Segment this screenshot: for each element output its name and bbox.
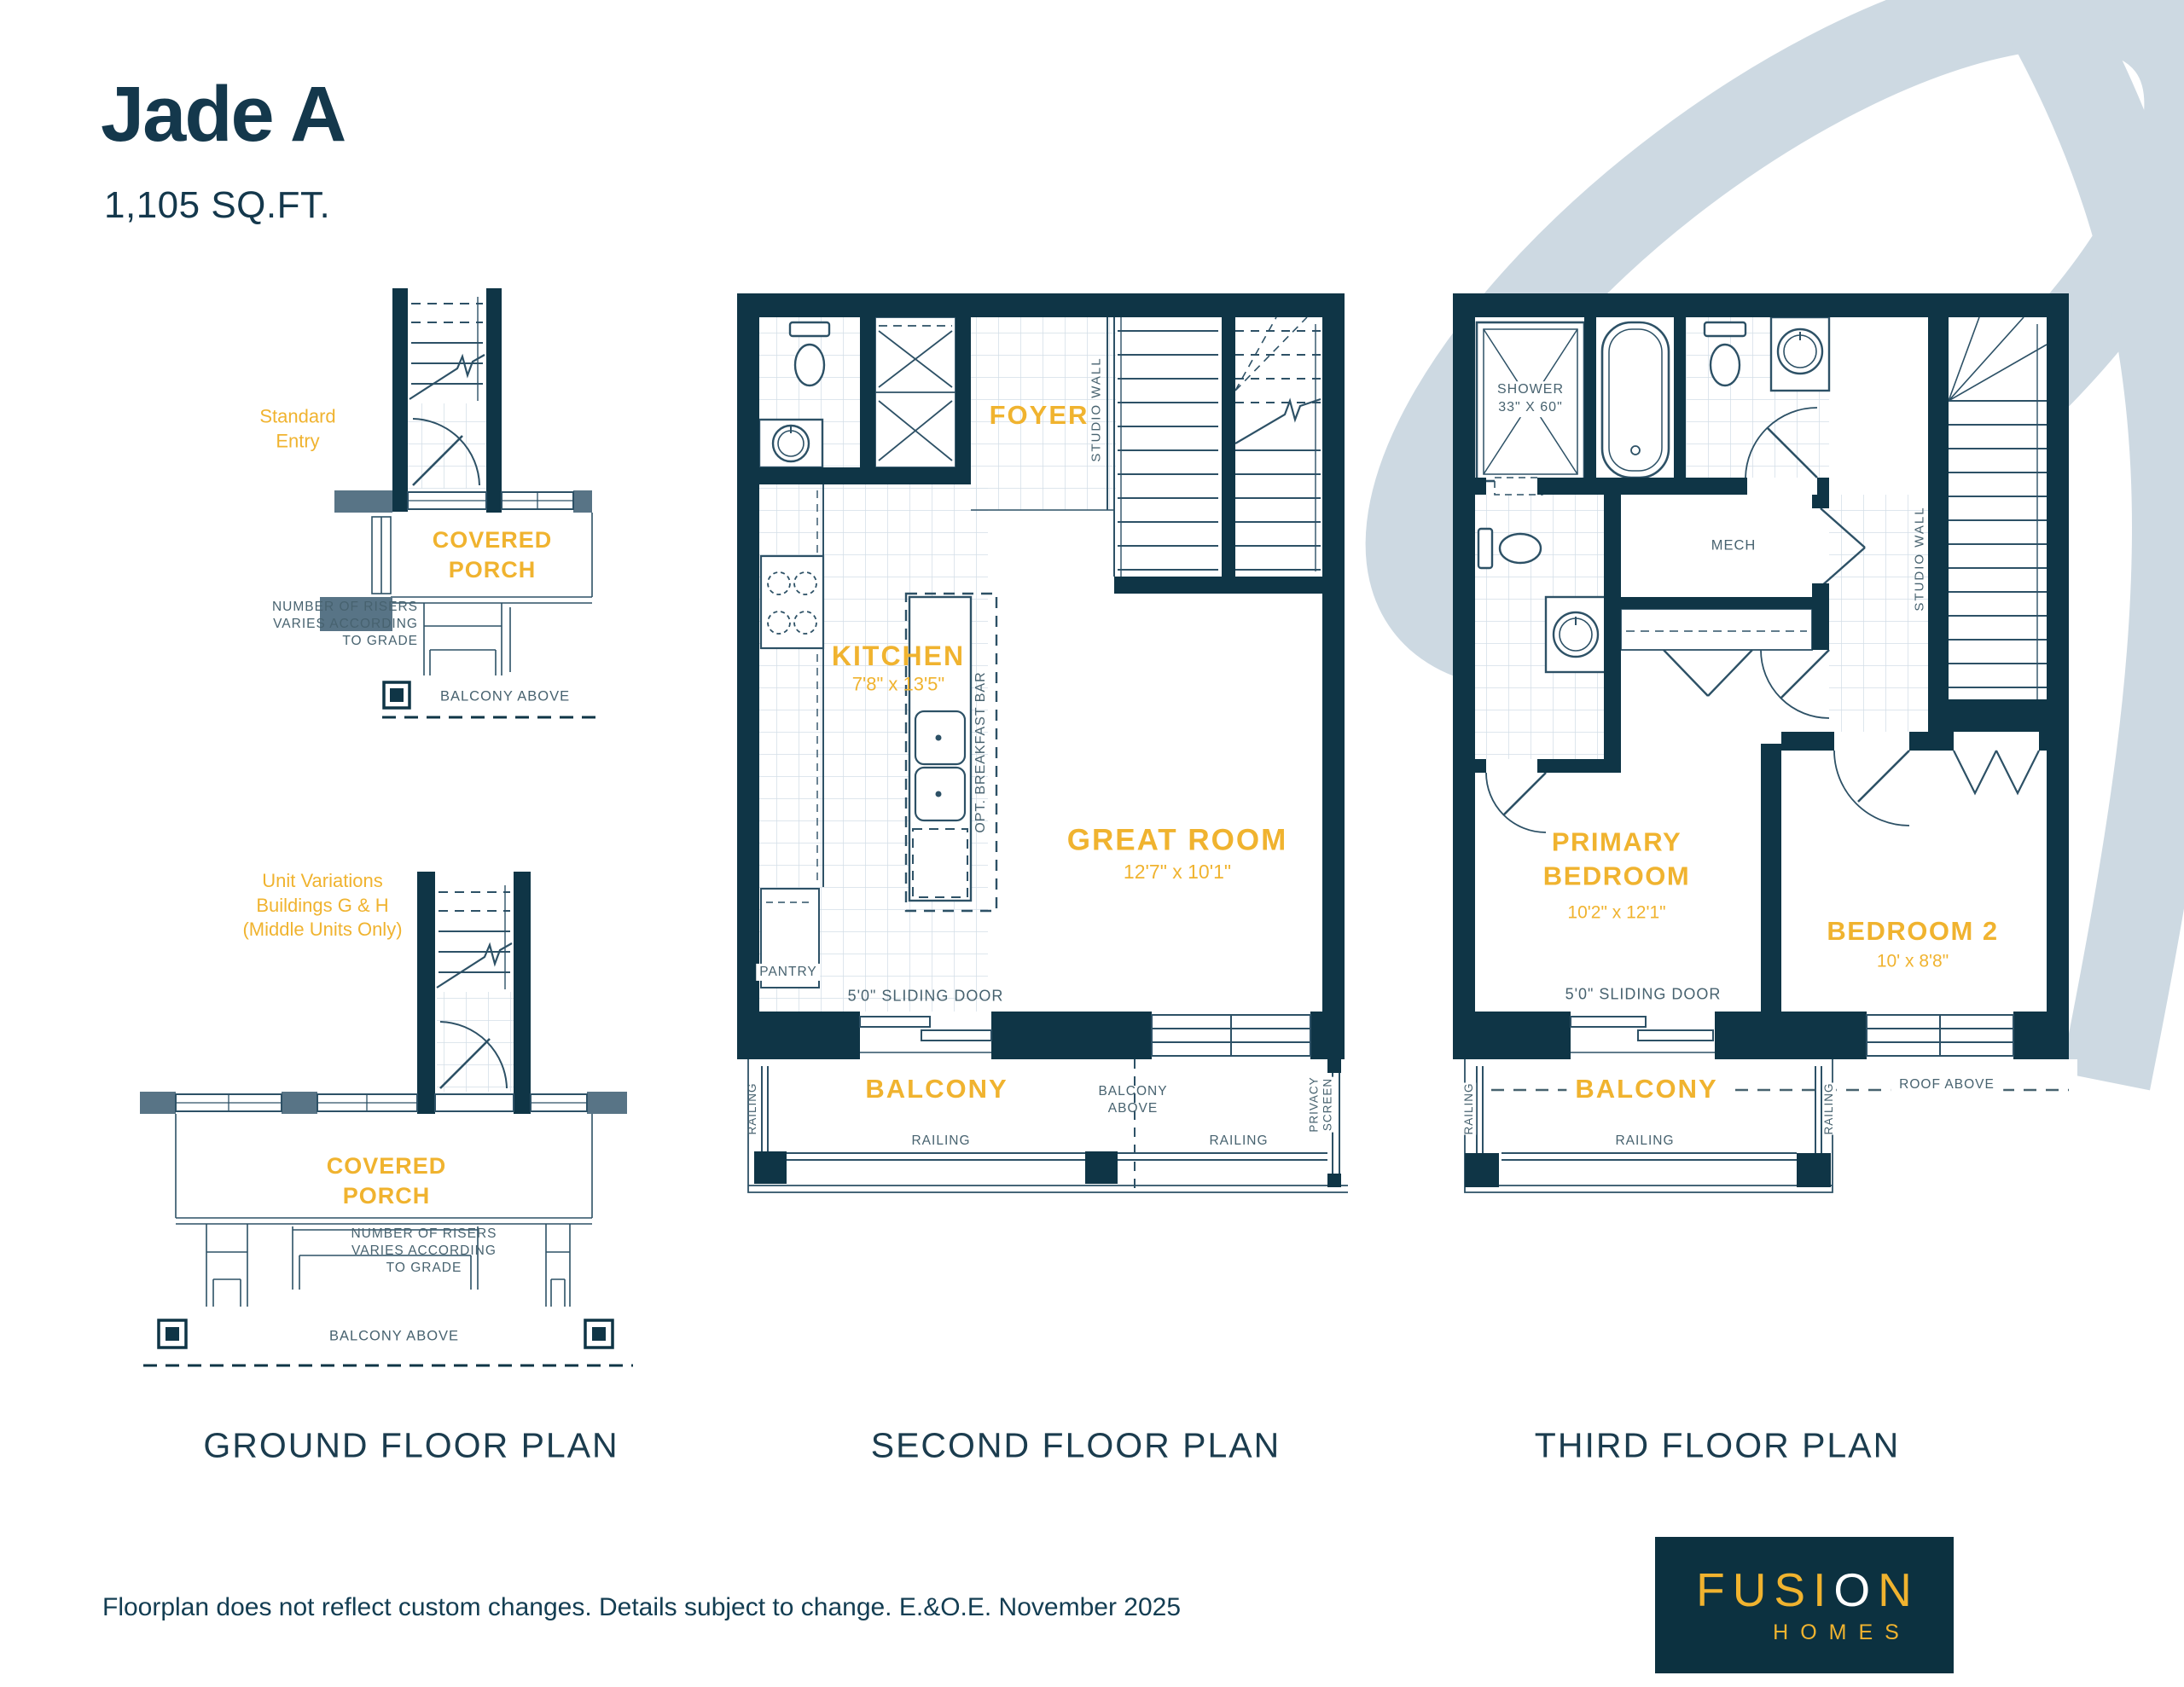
window <box>1867 1015 2013 1056</box>
covered-porch-label-2: COVERED PORCH <box>327 1151 447 1211</box>
balcony-above-label-2: BALCONY ABOVE <box>329 1327 459 1345</box>
entry-tile-floor <box>408 403 486 489</box>
ground-floor-standard-entry-drawing <box>290 273 657 738</box>
window <box>1152 1015 1310 1056</box>
entry-tile-floor <box>437 992 514 1092</box>
balcony-above-label: BALCONY ABOVE <box>440 687 570 705</box>
entry-stairs <box>437 885 512 989</box>
sliding-door-label: 5'0" SLIDING DOOR <box>848 986 1004 1006</box>
logo-o-ring: O <box>1833 1563 1878 1616</box>
privacy-screen-label: PRIVACY SCREEN <box>1307 1076 1333 1132</box>
risers-note-2: NUMBER OF RISERS VARIES ACCORDING TO GRA… <box>351 1226 497 1277</box>
studio-wall-label-3: STUDIO WALL <box>1912 506 1926 611</box>
logo-brand: FUSION <box>1696 1567 1920 1614</box>
risers-note: NUMBER OF RISERS VARIES ACCORDING TO GRA… <box>272 599 418 650</box>
ground-floor-title: GROUND FLOOR PLAN <box>203 1426 619 1466</box>
third-floor-title: THIRD FLOOR PLAN <box>1535 1426 1900 1466</box>
entry-stairs <box>409 297 485 401</box>
railing-label-b3: RAILING <box>1608 1133 1681 1150</box>
railing-label-b2: RAILING <box>1202 1133 1275 1150</box>
primary-bedroom-label: PRIMARY BEDROOM <box>1543 826 1690 895</box>
sink-fixture-2 <box>1546 597 1606 672</box>
kitchen-label: KITCHEN <box>832 639 965 675</box>
railing-label-v3b: RAILING <box>1822 1082 1836 1134</box>
balcony-label-3: BALCONY <box>1566 1072 1726 1106</box>
kitchen-dims: 7'8" x 13'5" <box>852 673 944 698</box>
page-title: Jade A <box>101 75 345 154</box>
bathtub-fixture <box>1602 322 1669 478</box>
bedroom2-dims: 10' x 8'8" <box>1877 949 1949 972</box>
stove-fixture <box>761 556 823 648</box>
disclaimer-text: Floorplan does not reflect custom change… <box>102 1593 1181 1622</box>
standard-entry-label: Standard Entry <box>259 404 335 453</box>
second-floor-title: SECOND FLOOR PLAN <box>871 1426 1281 1466</box>
railing-label-b1: RAILING <box>904 1133 977 1150</box>
floorplan-sheet: Jade A 1,105 SQ.FT. <box>0 0 2184 1687</box>
porch-front-band <box>140 1092 627 1114</box>
pantry-label: PANTRY <box>756 964 820 981</box>
shower-label: SHOWER 33" X 60" <box>1495 381 1566 417</box>
page-subtitle-area: 1,105 SQ.FT. <box>104 184 330 227</box>
great-room-dims: 12'7" x 10'1" <box>1124 860 1231 885</box>
sliding-door-label-3: 5'0" SLIDING DOOR <box>1565 984 1722 1004</box>
porch-steps <box>424 603 510 675</box>
studio-wall-label: STUDIO WALL <box>1089 357 1103 461</box>
third-floor-drawing <box>1446 286 2077 1198</box>
great-room-label: GREAT ROOM <box>1067 820 1288 860</box>
covered-porch-label: COVERED PORCH <box>433 525 553 585</box>
balcony-above-label-2f: BALCONY ABOVE <box>1098 1083 1167 1117</box>
primary-bedroom-dims: 10'2" x 12'1" <box>1567 901 1665 924</box>
porch-front-band <box>334 490 592 513</box>
railing-label-v: RAILING <box>746 1082 759 1134</box>
fusion-homes-logo: FUSION HOMES <box>1655 1537 1954 1673</box>
roof-above-label: ROOF ABOVE <box>1891 1076 2003 1093</box>
bedroom2-label: BEDROOM 2 <box>1827 914 1998 948</box>
sink-fixture <box>759 420 822 467</box>
sink-fixture <box>1771 317 1829 391</box>
railing-label-v3a: RAILING <box>1462 1082 1476 1134</box>
balcony-label: BALCONY <box>865 1072 1008 1106</box>
mech-label: MECH <box>1708 536 1760 554</box>
foyer-label: FOYER <box>990 398 1089 432</box>
logo-sub: HOMES <box>1773 1622 1911 1644</box>
breakfast-bar-label: OPT. BREAKFAST BAR <box>973 671 989 832</box>
unit-variations-label: Unit Variations Buildings G & H (Middle … <box>242 869 402 942</box>
